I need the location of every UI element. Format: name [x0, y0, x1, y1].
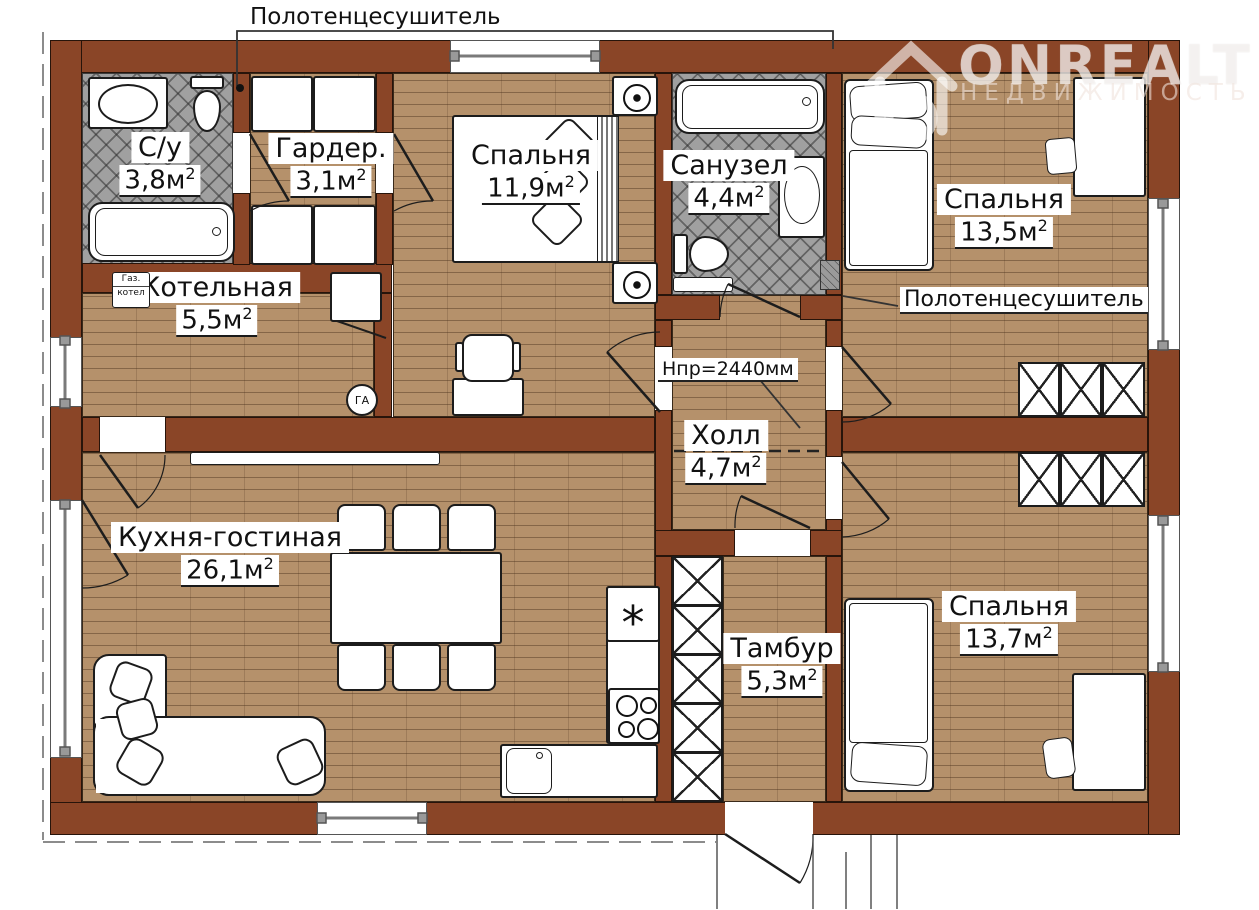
porch-lines [717, 835, 897, 909]
room-area: 3,8м2 [119, 165, 200, 197]
closet-x-icon [672, 556, 723, 606]
towel-dryer-label-top: Полотенцесушитель [250, 4, 501, 30]
window-bottom [317, 802, 427, 835]
gas-boiler-label-2: котел [113, 286, 149, 300]
room-name: Спальня [937, 184, 1071, 215]
room-name: С/у [131, 132, 189, 163]
ceiling-height-label: Нпр=2440мм [658, 358, 798, 382]
room-label-kitchen: Кухня-гостиная 26,1м2 [111, 522, 349, 587]
brand-subtitle: НЕДВИЖИМОСТЬ [960, 80, 1253, 106]
pillow-icon [850, 741, 929, 786]
room-area: 4,7м2 [685, 453, 766, 485]
room-area: 3,1м2 [290, 166, 371, 198]
gas-badge-label: ГА [355, 394, 369, 407]
bath-shelf [673, 277, 733, 292]
chair-icon [392, 504, 441, 551]
toilet-tank-icon [673, 234, 688, 274]
closet-x-icon [672, 703, 723, 753]
wall-su-garder-b [233, 193, 250, 265]
chair-icon [392, 644, 441, 691]
window-left-1 [50, 337, 82, 407]
desk-icon [1072, 673, 1146, 791]
bed-blanket [849, 603, 928, 743]
wall-su-garder-a [233, 73, 250, 133]
closet-x-icon [1102, 362, 1145, 417]
room-area: 26,1м2 [181, 555, 279, 587]
room-label-bedroom-right-top: Спальня 13,5м2 [937, 184, 1071, 249]
closet-x-icon [1018, 452, 1060, 507]
stove-burner [637, 718, 659, 740]
room-area: 11,9м2 [482, 173, 580, 205]
room-name: Гардер. [268, 133, 393, 164]
room-label-garder: Гардер. 3,1м2 [268, 133, 393, 198]
chair-icon [447, 644, 496, 691]
entry-door-opening [725, 802, 813, 835]
closet-x-icon [1060, 452, 1102, 507]
stove-burner [618, 721, 635, 738]
wardrobe-cabinet [313, 76, 376, 132]
kitchen-sink-icon [506, 748, 552, 794]
nightstand-speaker [612, 76, 658, 116]
room-name: Спальня [464, 140, 598, 171]
fridge-mark: * [622, 613, 645, 633]
toilet-tank-icon [190, 76, 224, 89]
chair-icon [1041, 736, 1076, 780]
nightstand-speaker [612, 262, 658, 304]
wall-hall-left-lower [655, 410, 672, 532]
wall-central-main [165, 417, 655, 452]
floor-plan: Газ. котел ГА * [0, 0, 1259, 910]
wall-hall-right-upper [826, 320, 842, 347]
door-entry [725, 834, 813, 883]
window-top [450, 40, 600, 73]
bed-blanket [849, 150, 928, 266]
wall-central-left [82, 417, 100, 452]
room-area: 5,3м2 [741, 666, 822, 698]
closet-x-icon [672, 752, 723, 802]
fridge-cell: * [606, 586, 660, 642]
window-right-2 [1148, 515, 1180, 672]
wardrobe-cabinet [313, 205, 376, 265]
room-area: 4,4м2 [688, 183, 769, 215]
speaker-icon [623, 271, 651, 299]
window-right-1 [1148, 198, 1180, 350]
room-area: 5,5м2 [176, 305, 257, 337]
wall-hall-tambur-left [655, 530, 735, 556]
wall-garder-bedroom-b [376, 193, 393, 265]
window-left-2 [50, 500, 82, 758]
room-name: Кухня-гостиная [111, 522, 349, 553]
closet-x-icon [672, 654, 723, 704]
room-name: Спальня [942, 591, 1076, 622]
gas-boiler-label-1: Газ. [113, 273, 149, 286]
room-name: Котельная [134, 272, 300, 303]
closet-x-icon [1018, 362, 1060, 417]
room-label-hall: Холл 4,7м2 [684, 420, 768, 485]
closet-x-icon [1060, 362, 1102, 417]
stove-burner [640, 697, 657, 714]
bed-headboard [597, 116, 619, 262]
kitchen-sink-tap [536, 752, 543, 759]
room-area: 13,5м2 [955, 217, 1053, 249]
room-area: 13,7м2 [960, 624, 1058, 656]
bathtub-inner [95, 208, 228, 256]
room-label-bedroom-right-bottom: Спальня 13,7м2 [942, 591, 1076, 656]
wall-bedrooms-divider [842, 417, 1148, 452]
speaker-icon [623, 84, 651, 112]
wardrobe-cabinet [251, 76, 313, 132]
room-name: Холл [684, 420, 768, 451]
wall-garder-bedroom-a [376, 73, 393, 133]
bathtub-drain [212, 227, 221, 236]
room-label-sanuzel: Санузел 4,4м2 [663, 150, 794, 215]
room-label-tambur: Тамбур 5,3м2 [723, 633, 840, 698]
sink-bowl-icon [98, 84, 158, 124]
wall-sanuzel-south-left [655, 295, 720, 320]
floor-hall [672, 295, 826, 530]
boiler-room-door-opening [330, 272, 382, 322]
bathtub-inner [682, 85, 818, 129]
room-name: Санузел [663, 150, 794, 181]
gas-boiler-box: Газ. котел [112, 272, 150, 308]
closet-x-icon [672, 605, 723, 655]
closet-x-icon [1102, 452, 1145, 507]
wardrobe-cabinet [251, 205, 313, 265]
chair-armrest [455, 342, 464, 372]
chair-icon [337, 644, 386, 691]
pillow-icon [850, 115, 927, 149]
room-label-kotelnaya: Котельная 5,5м2 [134, 272, 300, 337]
wall-bottom [50, 802, 1180, 835]
room-label-bedroom-top: Спальня 11,9м2 [464, 140, 598, 205]
chair-icon [447, 504, 496, 551]
wall-hall-tambur-right [810, 530, 842, 556]
wall-hall-right-mid [826, 410, 842, 457]
towel-dryer-label-right: Полотенцесушитель [900, 287, 1148, 314]
room-name: Тамбур [723, 633, 840, 664]
kitchen-upper-cabinet [190, 452, 440, 465]
chair-armrest [512, 342, 521, 372]
wall-right [1148, 40, 1180, 835]
wall-hall-left-upper [655, 320, 672, 347]
desk-icon [452, 378, 524, 416]
gas-badge: ГА [346, 384, 378, 416]
chair-icon [462, 334, 514, 382]
dining-table-icon [330, 552, 502, 644]
towel-dryer-icon [820, 260, 840, 290]
room-label-su: С/у 3,8м2 [119, 132, 200, 197]
wall-sanuzel-south-right [800, 295, 842, 320]
stove-burner [616, 695, 638, 717]
stove-icon [608, 688, 660, 744]
bathtub-drain [802, 97, 811, 106]
nightstand-icon [1044, 137, 1077, 175]
